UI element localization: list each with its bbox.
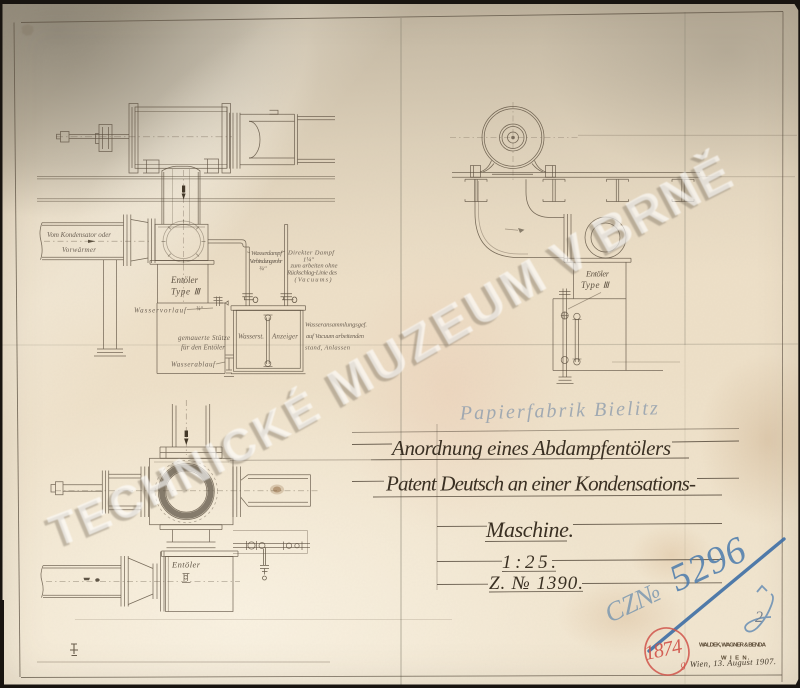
svg-text:auf Vacuum arbeitenden: auf Vacuum arbeitenden (306, 333, 364, 340)
svg-text:¾″: ¾″ (259, 266, 267, 273)
svg-text:Wasserdampf: Wasserdampf (251, 250, 283, 257)
svg-text:Wasserst.: Wasserst. (238, 333, 264, 341)
svg-text:Wasserablauf: Wasserablauf (171, 361, 216, 369)
svg-text:Verbindungsrohr: Verbindungsrohr (250, 258, 283, 265)
svg-text:Patent Deutsch an einer Konden: Patent Deutsch an einer Kondensations- (385, 472, 696, 496)
svg-text:Entöler: Entöler (170, 275, 198, 285)
svg-text:zum arbeiten ohne: zum arbeiten ohne (290, 263, 338, 270)
svg-text:Rückschlag-Linie des: Rückschlag-Linie des (286, 270, 337, 277)
svg-text:Wasseransammlungsgef.: Wasseransammlungsgef. (305, 322, 367, 329)
svg-text:Anzeiger: Anzeiger (271, 333, 298, 341)
svg-text:Maschine.: Maschine. (485, 517, 574, 542)
svg-text:Wasservorlauf: Wasservorlauf (134, 307, 187, 315)
svg-text:2: 2 (755, 609, 763, 626)
svg-text:Anordnung eines Abdampfentöler: Anordnung eines Abdampfentölers (390, 436, 671, 460)
svg-text:für den Entöler: für den Entöler (181, 344, 225, 352)
svg-text:WALDEK, WAGNER & BENDA: WALDEK, WAGNER & BENDA (699, 643, 767, 649)
svg-text:Entöler: Entöler (171, 560, 201, 570)
svg-text:gemauerte Stütze: gemauerte Stütze (178, 334, 230, 342)
svg-text:Z. № 1390.: Z. № 1390. (489, 573, 583, 594)
svg-text:Type Ⅲ: Type Ⅲ (171, 287, 201, 297)
svg-text:Vorwärmer: Vorwärmer (62, 246, 96, 254)
svg-text:Vom Kondensator oder: Vom Kondensator oder (47, 231, 111, 239)
svg-text:¾″: ¾″ (196, 307, 204, 313)
svg-text:stand, Anlassen: stand, Anlassen (305, 345, 350, 352)
svg-text:Type Ⅲ: Type Ⅲ (581, 280, 610, 290)
svg-text:Direkter Dampf: Direkter Dampf (287, 250, 335, 257)
svg-text:(Vacuums): (Vacuums) (295, 277, 332, 284)
